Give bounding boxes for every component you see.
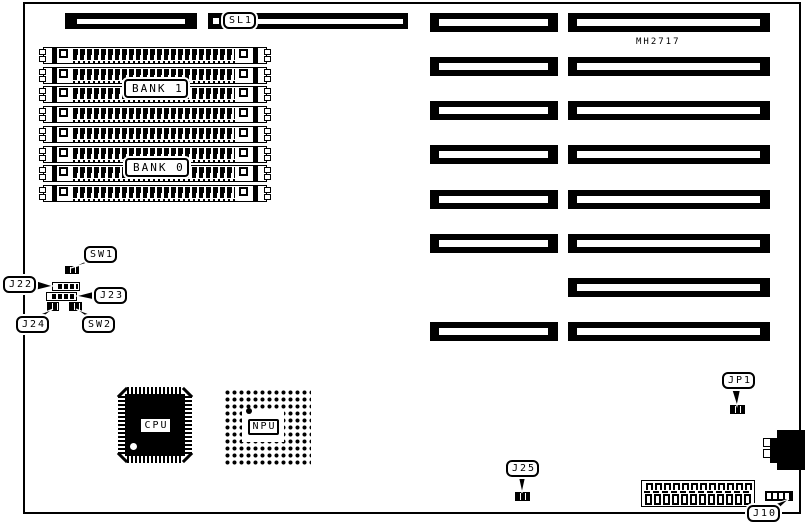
isa-slot-long-segment (568, 13, 770, 32)
slot-stripe (439, 196, 548, 203)
power-connector (641, 480, 755, 507)
bank1-label: BANK 1 (124, 79, 188, 98)
simm-mount-hole (39, 108, 46, 114)
slot-stripe (577, 240, 760, 247)
simm-clip (239, 187, 248, 196)
simm-end-post (253, 127, 258, 142)
simm-mount-hole (264, 56, 271, 62)
connector-body (770, 438, 805, 463)
callout-sw1: SW1 (84, 246, 117, 263)
slot-stripe (577, 151, 760, 158)
simm-pin-comb (73, 187, 235, 201)
isa-slot-long-segment (568, 190, 770, 209)
expansion-slot-row (430, 278, 770, 297)
power-tab (727, 483, 734, 490)
simm-mount-hole (264, 167, 271, 173)
simm-mount-hole (39, 76, 46, 82)
power-pin (744, 494, 751, 505)
simm-clip (59, 128, 68, 137)
power-tab (745, 483, 752, 490)
power-pin (663, 494, 670, 505)
simm-mount-hole (264, 135, 271, 141)
slot-stripe (439, 63, 548, 70)
simm-mount-hole (39, 148, 46, 154)
slot-pin-square (213, 18, 219, 24)
simm-pin-row (73, 114, 235, 119)
npu-socket: NPU (223, 388, 311, 467)
power-tab (646, 483, 653, 490)
simm-mount-hole (39, 69, 46, 75)
j10-header-block (765, 491, 793, 501)
simm-end-post (52, 48, 57, 63)
callout-j24: J24 (16, 316, 49, 333)
power-tab (718, 483, 725, 490)
simm-end-post (253, 166, 258, 181)
isa-slot-short-segment (430, 190, 558, 209)
simm-mount-hole (39, 174, 46, 180)
isa-slot-short-segment (430, 322, 558, 341)
expansion-slot-area (430, 13, 770, 341)
slot-stripe (439, 19, 548, 26)
slot-stripe (439, 240, 548, 247)
bank0-label: BANK 0 (125, 158, 189, 177)
power-pin (654, 494, 661, 505)
simm-mount-hole (39, 187, 46, 193)
simm-mount-hole (39, 88, 46, 94)
power-tab (673, 483, 680, 490)
isa-slot-long-segment (568, 101, 770, 120)
simm-end-post (52, 127, 57, 142)
simm-mount-hole (264, 49, 271, 55)
isa-slot-long-segment (568, 278, 770, 297)
simm-pin-comb (73, 108, 235, 122)
simm-end-post (52, 147, 57, 162)
simm-socket (43, 185, 267, 203)
simm-end-post (52, 166, 57, 181)
power-pin (681, 494, 688, 505)
simm-mount-hole (264, 174, 271, 180)
simm-mount-hole (39, 95, 46, 101)
top-slot-bar (65, 13, 197, 29)
simm-mount-hole (39, 115, 46, 121)
simm-mount-hole (39, 49, 46, 55)
simm-clip (59, 167, 68, 176)
power-connector-divider (644, 491, 752, 493)
simm-mount-hole (264, 128, 271, 134)
power-pin (672, 494, 679, 505)
simm-end-post (52, 87, 57, 102)
simm-pin-row (73, 61, 235, 63)
slot-stripe (577, 328, 760, 335)
callout-j22: J22 (3, 276, 36, 293)
simm-clip (239, 88, 248, 97)
board-part-number: MH2717 (636, 37, 681, 47)
simm-pin-row (73, 120, 235, 122)
simm-mount-hole (264, 69, 271, 75)
simm-pin-comb (73, 49, 235, 63)
simm-bank-area (43, 47, 267, 203)
cpu-chip: CPU (118, 387, 192, 463)
expansion-slot-row (430, 57, 770, 76)
simm-mount-hole (264, 76, 271, 82)
slot-stripe (577, 107, 760, 114)
slot-stripe (577, 284, 760, 291)
isa-slot-long-segment (568, 57, 770, 76)
simm-mount-hole (39, 128, 46, 134)
expansion-slot-row (430, 101, 770, 120)
simm-end-post (253, 48, 258, 63)
simm-mount-hole (264, 95, 271, 101)
simm-mount-hole (39, 135, 46, 141)
simm-clip (59, 187, 68, 196)
callout-jp1: JP1 (722, 372, 755, 389)
power-connector-pins (645, 494, 751, 505)
callout-sl1: SL1 (223, 12, 256, 29)
simm-clip (59, 49, 68, 58)
power-tab (664, 483, 671, 490)
simm-clip (239, 69, 248, 78)
simm-clip (59, 69, 68, 78)
slot-stripe (439, 107, 548, 114)
power-pin (735, 494, 742, 505)
isa-slot-long-segment (568, 234, 770, 253)
expansion-slot-row (430, 13, 770, 32)
simm-clip (239, 148, 248, 157)
callout-sw2: SW2 (82, 316, 115, 333)
simm-end-post (253, 186, 258, 201)
power-pin (726, 494, 733, 505)
simm-mount-hole (39, 155, 46, 161)
power-tab (682, 483, 689, 490)
power-pin (690, 494, 697, 505)
j24-jumper-block (47, 302, 59, 311)
isa-slot-short-segment (430, 57, 558, 76)
simm-clip (59, 108, 68, 117)
simm-clip (59, 148, 68, 157)
power-pin (708, 494, 715, 505)
simm-pin-row (73, 140, 235, 142)
isa-slot-long-segment (568, 145, 770, 164)
slot-stripe (577, 19, 760, 26)
connector-notch (763, 449, 771, 458)
slot-stripe (77, 19, 185, 24)
npu-label: NPU (248, 419, 279, 435)
connector-body (777, 430, 805, 438)
sw1-switch-block (65, 266, 79, 274)
callout-j25: J25 (506, 460, 539, 477)
simm-mount-hole (264, 108, 271, 114)
simm-mount-hole (264, 187, 271, 193)
simm-clip (239, 128, 248, 137)
simm-mount-hole (264, 155, 271, 161)
simm-end-post (253, 87, 258, 102)
simm-end-post (253, 107, 258, 122)
simm-pin-comb (73, 128, 235, 142)
simm-mount-hole (39, 167, 46, 173)
expansion-slot-row (430, 322, 770, 341)
simm-socket (43, 126, 267, 144)
power-connector-tabs (646, 483, 752, 490)
cpu-pins (127, 455, 183, 463)
simm-clip (239, 167, 248, 176)
expansion-slot-row (430, 190, 770, 209)
simm-pin-row (73, 193, 235, 198)
simm-end-post (253, 68, 258, 83)
power-tab (700, 483, 707, 490)
simm-clip (239, 108, 248, 117)
simm-end-post (52, 68, 57, 83)
simm-pin-row (73, 199, 235, 201)
sw2-switch-block (69, 302, 82, 311)
simm-pin-row (73, 100, 235, 102)
connector-body (777, 463, 805, 470)
simm-end-post (52, 186, 57, 201)
power-tab (655, 483, 662, 490)
jumper-pins (52, 294, 75, 299)
isa-slot-short-segment (430, 101, 558, 120)
cpu-pin1-dot (130, 443, 137, 450)
power-pin (717, 494, 724, 505)
simm-pin-row (73, 179, 235, 181)
callout-j23: J23 (94, 287, 127, 304)
power-pin (699, 494, 706, 505)
slot-stripe (439, 328, 548, 335)
slot-stripe (577, 196, 760, 203)
expansion-slot-row (430, 145, 770, 164)
simm-end-post (253, 147, 258, 162)
simm-pin-row (73, 134, 235, 139)
slot-stripe (439, 151, 548, 158)
simm-socket (43, 47, 267, 65)
power-tab (691, 483, 698, 490)
slot-stripe (258, 19, 403, 24)
motherboard-diagram: SL1 (0, 0, 805, 527)
simm-clip (239, 49, 248, 58)
callout-j10: J10 (747, 505, 780, 522)
isa-slot-short-segment (430, 13, 558, 32)
isa-slot-long-segment (568, 322, 770, 341)
slot-stripe (577, 63, 760, 70)
power-tab (736, 483, 743, 490)
simm-mount-hole (264, 115, 271, 121)
simm-end-post (52, 107, 57, 122)
j25-jumper-block (515, 492, 530, 501)
j23-jumper-block (46, 292, 77, 301)
isa-slot-short-segment (430, 234, 558, 253)
jp1-jumper-block (730, 405, 745, 414)
j22-jumper-block (52, 282, 80, 291)
isa-slot-short-segment (430, 145, 558, 164)
simm-mount-hole (39, 56, 46, 62)
jumper-pins (58, 284, 78, 289)
simm-mount-hole (39, 194, 46, 200)
simm-pin-row (73, 55, 235, 60)
simm-mount-hole (264, 88, 271, 94)
power-tab (709, 483, 716, 490)
cpu-pins (184, 396, 192, 454)
connector-notch (763, 438, 771, 447)
cpu-label: CPU (140, 418, 171, 433)
simm-socket (43, 106, 267, 124)
simm-clip (59, 88, 68, 97)
keyboard-connector (763, 430, 805, 470)
simm-mount-hole (264, 194, 271, 200)
npu-pin1-dot (246, 408, 252, 414)
simm-mount-hole (264, 148, 271, 154)
power-pin (645, 494, 652, 505)
expansion-slot-row (430, 234, 770, 253)
